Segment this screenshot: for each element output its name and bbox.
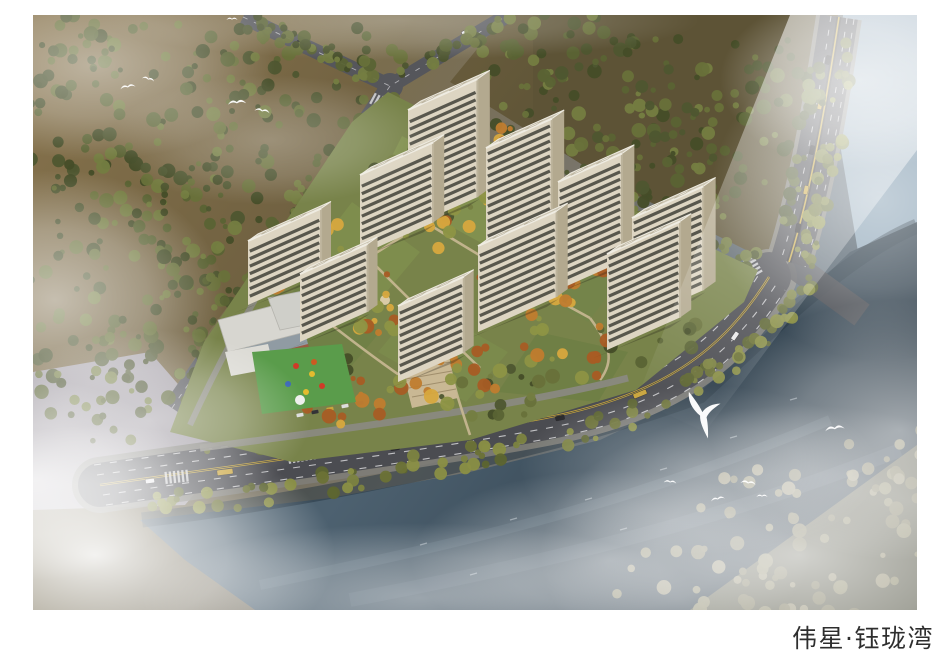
- caption-text: 伟星·钰珑湾: [792, 619, 934, 655]
- page: 伟星·钰珑湾: [0, 0, 950, 671]
- aerial-render-canvas: [33, 15, 917, 610]
- aerial-photo: [33, 15, 917, 610]
